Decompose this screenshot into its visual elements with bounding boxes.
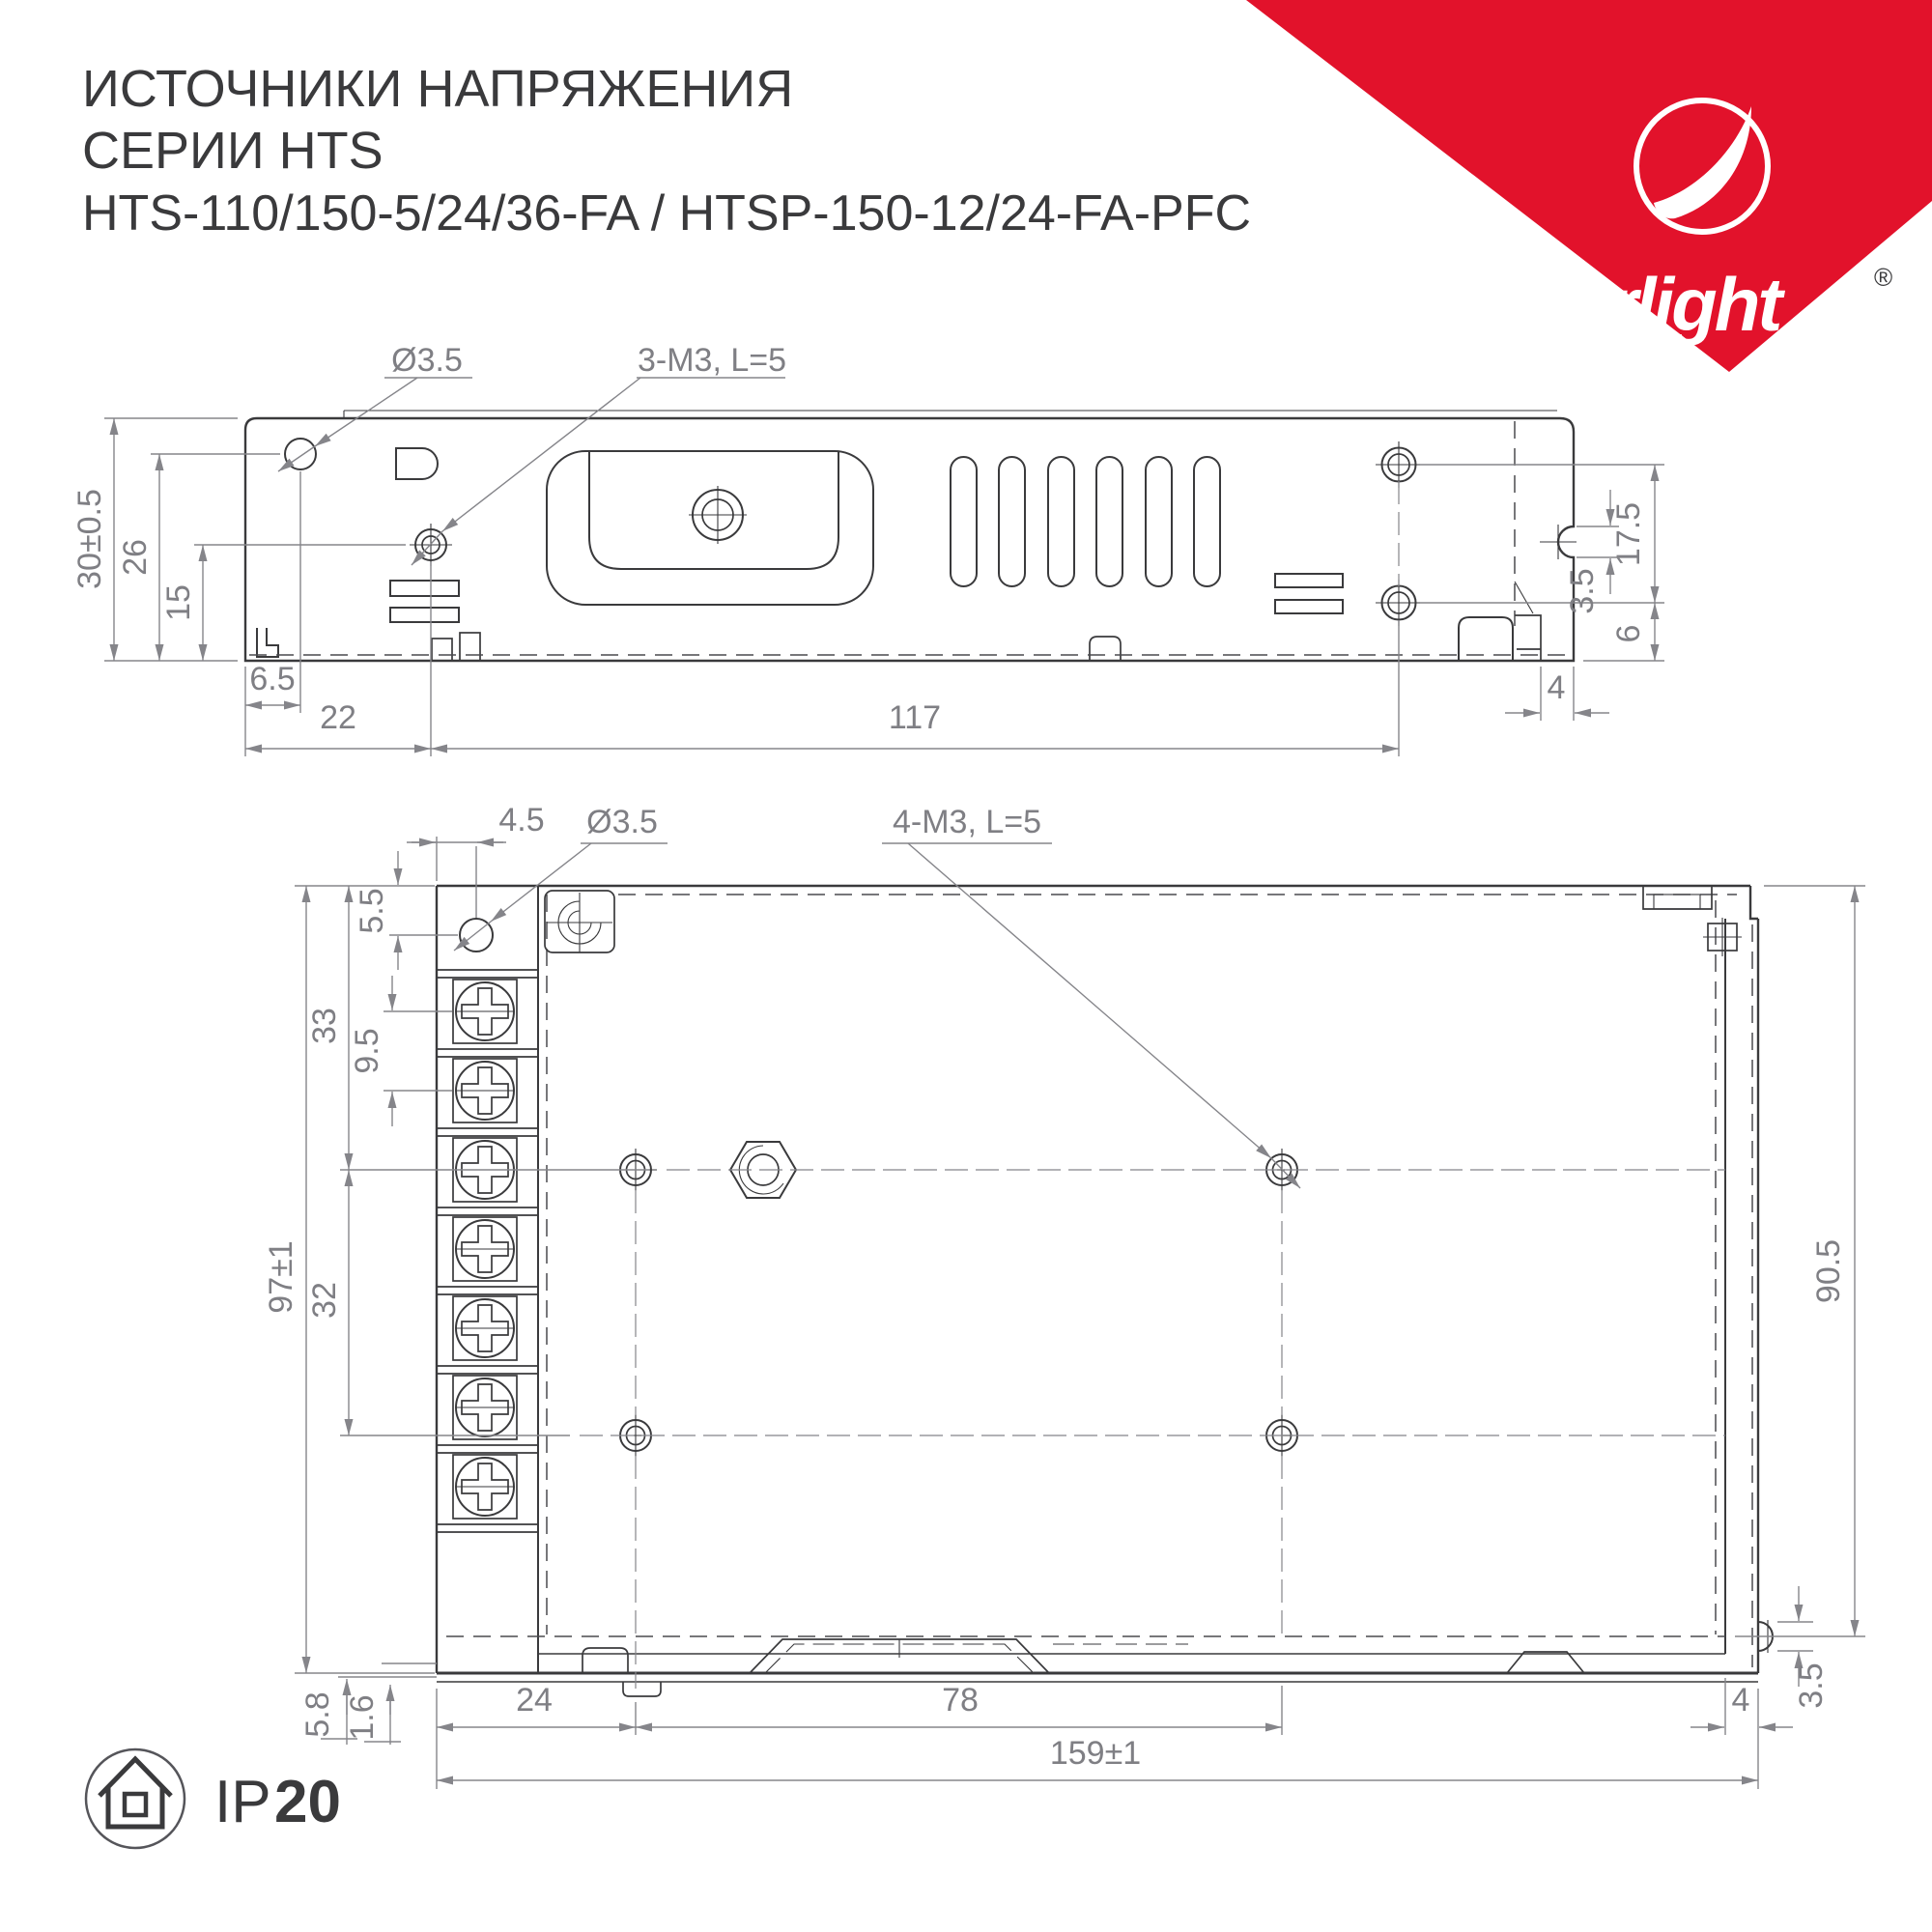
dim-hole-inset-x: 4.5 — [498, 802, 544, 838]
callout-hole-dia: Ø3.5 — [391, 342, 463, 379]
dim-foot-height: 5.8 — [299, 1691, 336, 1737]
brand-logo: arlight ® — [1246, 0, 1932, 372]
badge-circle — [86, 1749, 185, 1848]
ip-rating-badge: IP 20 — [86, 1749, 341, 1848]
dim-row-span: 32 — [306, 1282, 343, 1319]
keyhole-slot — [396, 448, 438, 479]
brand-registered-mark: ® — [1874, 263, 1892, 292]
dim-col-span: 78 — [942, 1682, 979, 1719]
dim-overall-height: 30±0.5 — [71, 489, 108, 589]
dim-overall-width: 97±1 — [263, 1240, 299, 1313]
dim-base-height: 6 — [1610, 625, 1647, 643]
vent-slots — [951, 457, 1220, 586]
dim-terminal-pitch: 9.5 — [349, 1028, 385, 1073]
ip-prefix: IP — [214, 1769, 271, 1835]
page-title-line1: ИСТОЧНИКИ НАПРЯЖЕНИЯ — [82, 60, 793, 118]
dim-hole-offset: 6.5 — [249, 661, 295, 697]
dim-col1-offset: 24 — [516, 1682, 553, 1719]
dim-screw-height: 15 — [160, 584, 197, 621]
top-view-drawing — [340, 886, 1783, 1696]
page-title-models: HTS-110/150-5/24/36-FA / HTSP-150-12/24-… — [82, 185, 1251, 241]
dim-overall-length: 159±1 — [1050, 1735, 1141, 1772]
dim-body-depth: 90.5 — [1810, 1239, 1847, 1303]
mount-foot — [623, 1682, 661, 1696]
mount-holes-right — [1376, 441, 1422, 626]
bottom-clips — [432, 633, 1121, 661]
dim-row1-offset: 33 — [306, 1008, 343, 1044]
dim-screw-offset: 22 — [320, 699, 356, 736]
corner-bracket — [257, 628, 278, 657]
side-vent-pairs — [390, 574, 1343, 622]
dim-mount-span: 117 — [889, 699, 941, 736]
base-mount-holes — [340, 1142, 1725, 1689]
dim-flange-width-top: 4 — [1732, 1682, 1750, 1719]
terminal-screws — [453, 980, 517, 1519]
dim-tab-span: 17.5 — [1610, 502, 1647, 566]
callout-screw-spec: 3-M3, L=5 — [638, 342, 786, 379]
dim-ear-slot: 3.5 — [1793, 1662, 1830, 1708]
side-view-dimensions: 30±0.5 26 15 6.5 22 117 17.5 3.5 6 4 Ø3.… — [71, 342, 1664, 756]
dim-hole-height: 26 — [117, 539, 154, 576]
indoor-house-icon — [99, 1759, 171, 1827]
brand-wordmark: arlight — [1570, 262, 1785, 347]
top-view-dimensions: 4.5 5.5 Ø3.5 4-M3, L=5 33 9.5 97±1 32 5.… — [263, 802, 1865, 1789]
dim-hole-inset-y: 5.5 — [354, 888, 390, 933]
bottom-stamped-features — [582, 1620, 1783, 1696]
dim-tab-slot: 3.5 — [1564, 568, 1601, 613]
lid-screw — [689, 486, 747, 544]
dim-plate-thickness: 1.6 — [344, 1694, 381, 1740]
dim-flange-width: 4 — [1548, 669, 1566, 706]
datasheet-page: ИСТОЧНИКИ НАПРЯЖЕНИЯ СЕРИИ HTS HTS-110/1… — [0, 0, 1932, 1932]
side-view-drawing — [245, 411, 1577, 661]
technical-drawing-canvas: ИСТОЧНИКИ НАПРЯЖЕНИЯ СЕРИИ HTS HTS-110/1… — [0, 0, 1932, 1932]
callout-hole-dia-top: Ø3.5 — [586, 804, 658, 840]
title-block: ИСТОЧНИКИ НАПРЯЖЕНИЯ СЕРИИ HTS HTS-110/1… — [82, 60, 1251, 241]
terminal-block — [437, 919, 538, 1532]
mount-hole-left — [285, 439, 316, 469]
page-title-line2: СЕРИИ HTS — [82, 122, 384, 180]
label-recess-inner — [589, 451, 838, 569]
input-screw-boss — [545, 891, 614, 952]
ip-rating-value: 20 — [274, 1769, 341, 1835]
callout-screw-spec-top: 4-M3, L=5 — [893, 804, 1041, 840]
